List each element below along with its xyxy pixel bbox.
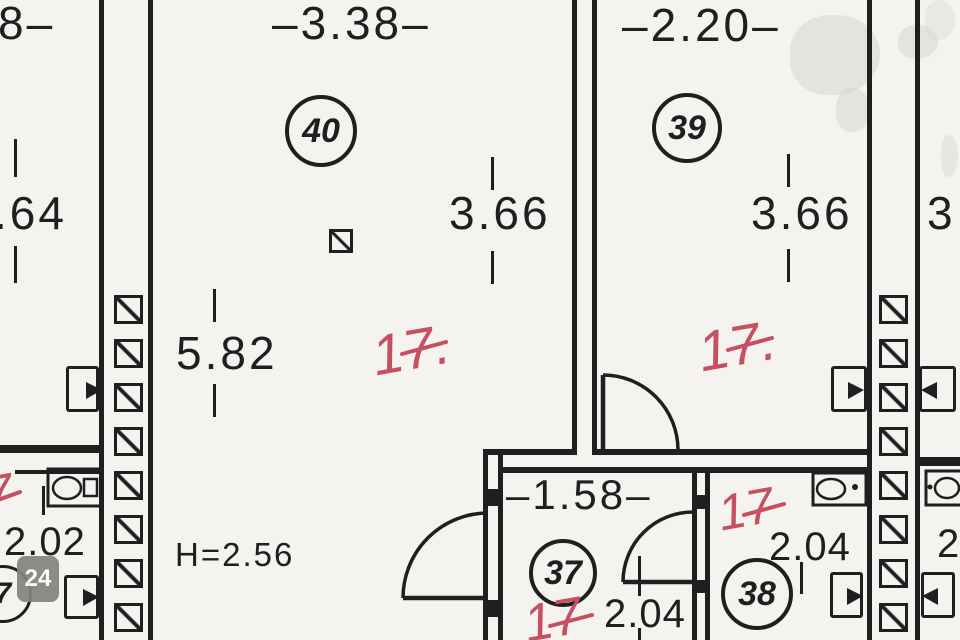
wall-right-room-top [920,457,960,466]
watermark-badge: 24 [17,556,59,602]
radiator-box [830,572,863,618]
room-number-38: 38 [721,558,793,630]
wall-hatch-square [879,515,908,544]
sink-38-tap [852,484,858,490]
wall-hatch-square [114,559,143,588]
sink-38-outline [813,473,866,505]
sink-left-outline [48,469,101,506]
dim-tick [787,249,790,282]
wall-left-bath-top-inner [15,470,103,474]
dim-tick [491,157,494,190]
wall-hatch-square [879,559,908,588]
wall-40-39-right-line [592,0,597,455]
room-number-39: 39 [652,93,722,163]
floor-plan: 8– –3.38– –2.20– .64 3.66 3.66 3 5.82 –1… [0,0,960,640]
wall-hatch-square [879,339,908,368]
dim-tick [14,139,17,177]
scan-smudge [925,0,955,40]
door-jamb [692,495,710,509]
sink-right-basin [935,478,959,498]
dim-tick [787,154,790,187]
door-jamb [483,600,503,617]
radiator-box [921,572,955,618]
wall-hatch-square [114,603,143,632]
wall-hatch-square [114,383,143,412]
wall-hall-top-upper-b [592,449,868,455]
wall-right-outer-line [915,0,920,640]
dim-hall-depth: 2.04 [604,594,686,634]
wall-hatch-square [114,515,143,544]
sink-left-detail [84,479,97,496]
dim-right-width-partial: 2 [937,524,960,564]
dim-room38-width: 2.04 [769,527,851,567]
door-arc-room38 [623,512,693,582]
dim-room40-height: 3.66 [449,190,551,236]
sink-left-basin [53,477,81,499]
room-number-40: 40 [285,95,357,167]
wall-hatch-square [879,383,908,412]
red-area-mark-left-partial: 7 [0,466,17,522]
wall-left-inner-line [148,0,153,640]
door-jamb [692,580,710,593]
sink-38-basin [817,479,845,499]
wall-hatch-square [114,295,143,324]
red-area-mark-room38: 17 [714,480,777,539]
scan-smudge [941,135,958,177]
dim-room40-length: 5.82 [176,330,278,376]
dim-tick [14,246,17,283]
dim-room40-width: –3.38– [272,0,431,46]
door-jamb [483,489,503,506]
wall-hatch-square [114,427,143,456]
wall-hatch-square [879,295,908,324]
red-area-mark-room40: 17. [368,316,454,385]
wall-left-outer-line [99,0,104,640]
radiator-box [919,366,956,412]
wall-40-39-left-line [572,0,577,455]
red-area-mark-room37: 17 [520,589,586,640]
watermark-text: 24 [25,565,52,593]
wall-right-inner-line [867,0,872,640]
wall-hatch-square [879,471,908,500]
dim-room39-width: –2.20– [622,2,781,48]
dim-tick [491,251,494,284]
red-area-mark-room39: 17. [694,312,780,381]
wall-hatch-square [879,427,908,456]
dim-right-height-partial: 3 [927,190,956,236]
wall-hatch-square [114,471,143,500]
dim-hall-width: –1.58– [506,474,652,516]
sink-right-tap [928,485,933,490]
shaft-hatch-symbol [329,229,353,253]
dim-tick [42,486,45,515]
door-arc-room39 [603,375,678,450]
dim-tick [213,384,216,417]
dim-left-height-partial: .64 [0,190,67,236]
wall-hall-top-upper-a [483,449,573,455]
dim-tick [638,556,641,596]
dim-tick [213,289,216,322]
dim-room39-height: 3.66 [751,190,853,236]
radiator-box [66,366,99,412]
wall-left-bath-top [0,445,100,453]
wall-hatch-square [879,603,908,632]
sink-right-outline [926,471,960,505]
radiator-box [831,366,867,412]
scan-smudge [836,88,870,132]
dim-top-left-partial: 8– [0,0,55,46]
dim-ceiling-height: H=2.56 [175,538,294,571]
door-arc-hall-left [403,513,488,598]
wall-hatch-square [114,339,143,368]
radiator-box [64,575,99,619]
